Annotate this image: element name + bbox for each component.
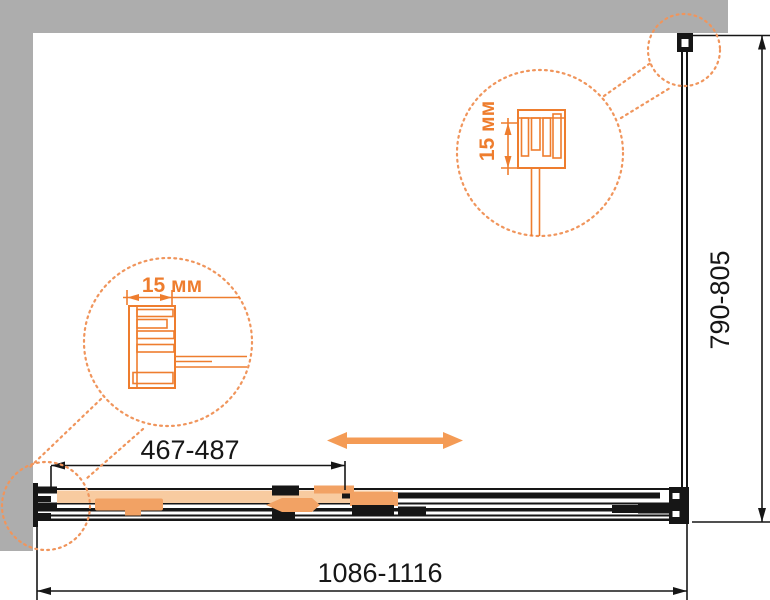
roller-left: [95, 499, 163, 516]
dimension-side-depth: 790-805: [689, 36, 770, 523]
wall-top: [0, 0, 728, 33]
detail-right-profile-drawing: [518, 110, 565, 236]
detail-left-profile-drawing: [129, 306, 247, 388]
dimension-overall-width: 1086-1116: [37, 523, 687, 600]
technical-drawing-canvas: 467-487 1086-1116 790-805 15 мм: [0, 0, 770, 600]
slide-direction-arrow-icon: [327, 432, 463, 449]
drawing-svg: 467-487 1086-1116 790-805 15 мм: [0, 0, 770, 600]
dimension-overall-width-label: 1086-1116: [317, 558, 442, 588]
dimension-door-adjust-label: 467-487: [140, 435, 239, 465]
dimension-side-depth-label: 790-805: [705, 250, 735, 349]
bottom-rail: [33, 483, 689, 527]
dimension-door-adjust: 467-487: [51, 435, 345, 490]
side-panel: [677, 33, 693, 489]
detail-right-label: 15 мм: [476, 101, 499, 161]
wall-left: [0, 0, 33, 551]
